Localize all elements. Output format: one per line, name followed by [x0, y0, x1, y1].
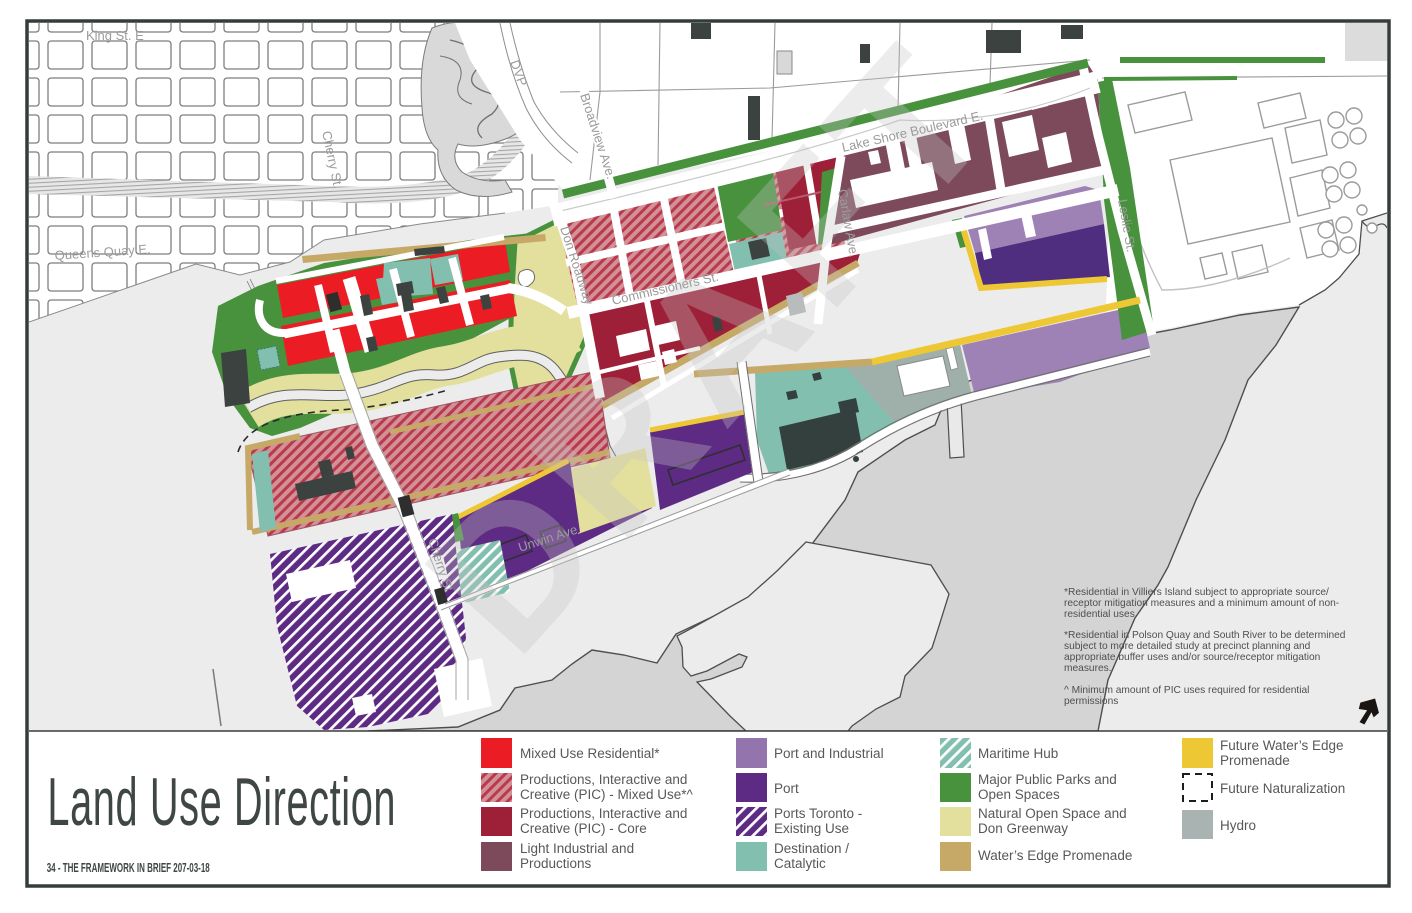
- svg-text:Future Naturalization: Future Naturalization: [1220, 781, 1345, 796]
- svg-text:Natural Open Space and: Natural Open Space and: [978, 806, 1127, 821]
- svg-text:appropriate buffer uses and/or: appropriate buffer uses and/or source/re…: [1064, 652, 1320, 663]
- svg-text:Catalytic: Catalytic: [774, 856, 826, 871]
- svg-text:Don Greenway: Don Greenway: [978, 821, 1068, 836]
- svg-text:Creative (PIC) - Core: Creative (PIC) - Core: [520, 821, 647, 836]
- svg-text:Creative (PIC) - Mixed Use*^: Creative (PIC) - Mixed Use*^: [520, 787, 694, 802]
- svg-text:*Residential in Villiers Islan: *Residential in Villiers Island subject …: [1064, 587, 1329, 598]
- svg-text:residential uses.: residential uses.: [1064, 609, 1138, 620]
- svg-text:Promenade: Promenade: [1220, 753, 1290, 768]
- svg-text:Hydro: Hydro: [1220, 818, 1256, 833]
- svg-text:Existing Use: Existing Use: [774, 821, 849, 836]
- svg-text:Water’s Edge Promenade: Water’s Edge Promenade: [978, 848, 1132, 863]
- svg-text:Open Spaces: Open Spaces: [978, 787, 1060, 802]
- svg-text:Land Use Direction: Land Use Direction: [47, 764, 396, 840]
- svg-text:Port and Industrial: Port and Industrial: [774, 746, 884, 761]
- svg-text:measures.: measures.: [1064, 663, 1112, 674]
- svg-text:King St. E: King St. E: [86, 28, 144, 43]
- svg-text:Productions, Interactive and: Productions, Interactive and: [520, 772, 687, 787]
- svg-text:receptor mitigation measures a: receptor mitigation measures and a minim…: [1064, 598, 1339, 609]
- svg-text:34 - THE FRAMEWORK IN BRIEF 20: 34 - THE FRAMEWORK IN BRIEF 207-03-18: [47, 862, 210, 875]
- svg-text:Future Water’s Edge: Future Water’s Edge: [1220, 738, 1344, 753]
- svg-text:Major Public Parks and: Major Public Parks and: [978, 772, 1117, 787]
- svg-text:Maritime Hub: Maritime Hub: [978, 746, 1058, 761]
- svg-text:Port: Port: [774, 781, 799, 796]
- svg-text:subject to more detailed study: subject to more detailed study at precin…: [1064, 641, 1311, 652]
- svg-text:Productions, Interactive and: Productions, Interactive and: [520, 806, 687, 821]
- svg-text:Destination /: Destination /: [774, 841, 849, 856]
- svg-text:permissions: permissions: [1064, 696, 1118, 707]
- svg-text:^ Minimum amount of PIC uses r: ^ Minimum amount of PIC uses required fo…: [1064, 685, 1309, 696]
- svg-text:Ports Toronto -: Ports Toronto -: [774, 806, 862, 821]
- svg-text:Productions: Productions: [520, 856, 592, 871]
- svg-text:Mixed Use Residential*: Mixed Use Residential*: [520, 746, 660, 761]
- svg-text:*Residential in Polson Quay an: *Residential in Polson Quay and South Ri…: [1064, 630, 1346, 641]
- svg-text:Light Industrial and: Light Industrial and: [520, 841, 634, 856]
